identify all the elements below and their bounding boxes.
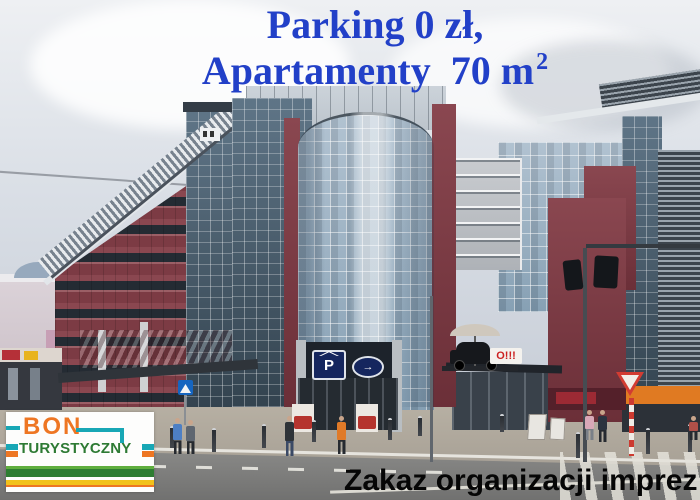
direction-sign: → [352, 356, 384, 378]
bollard [500, 414, 504, 432]
parking-sign-letter: P [324, 357, 334, 374]
logo-bracket-horizontal [76, 428, 124, 432]
shop-sign-yellow [24, 351, 38, 360]
pedestrian [688, 416, 699, 440]
poster-graphic [358, 416, 376, 429]
a-frame-sign [527, 414, 547, 440]
logo-subtitle: TURYSTYCZNY [19, 440, 131, 457]
bollard [646, 428, 650, 454]
logo-stripe-orange-left [6, 451, 18, 457]
tower-cap [183, 102, 237, 112]
bollard [388, 418, 392, 440]
bollard [212, 428, 216, 452]
bollard [312, 420, 316, 442]
storefront-sign: O!!! [490, 348, 522, 364]
logo-dash [6, 426, 20, 430]
shop-door [8, 368, 18, 400]
orange-storefront-band [626, 386, 700, 404]
striped-sign-post [629, 398, 634, 456]
traffic-light [593, 255, 619, 288]
traffic-light [562, 259, 583, 291]
pedestrian-crossing-sign [178, 380, 193, 395]
red-accent [556, 392, 596, 404]
headline-line2-text: Apartamenty 70 m [202, 48, 534, 93]
pedestrian [597, 410, 608, 442]
poster-graphic [294, 416, 312, 429]
pedestrian [185, 420, 196, 454]
street-pole [430, 296, 433, 462]
shop-door [30, 368, 40, 400]
parking-sign: P [312, 350, 346, 380]
bon-turystyczny-logo: BON TURYSTYCZNY [6, 412, 154, 492]
photo-scene: O!!! P → BON TURYSTYCZNY [0, 0, 700, 500]
headline-line1: Parking 0 zł, [140, 2, 610, 48]
pedestrian [336, 416, 347, 454]
facade-sign [200, 128, 220, 141]
headline-line2: Apartamenty 70 m2 [140, 48, 610, 100]
logo-stripe-orange-bottom [6, 485, 154, 487]
bollard [262, 424, 266, 448]
headline: Parking 0 zł, Apartamenty 70 m2 [140, 2, 610, 100]
pedestrian [584, 410, 595, 440]
bottom-notice: Zakaz organizacji imprez [344, 464, 697, 498]
storefront-sign-text: O!!! [496, 350, 516, 362]
car-wheel [454, 360, 465, 371]
a-frame-sign [549, 418, 565, 441]
logo-title: BON [23, 413, 82, 441]
poster [292, 404, 314, 432]
logo-stripe-teal-right [142, 444, 154, 450]
bollard [418, 416, 422, 436]
pedestrian [284, 416, 295, 456]
pedestrian [172, 418, 183, 454]
sign-glyphs [203, 131, 217, 137]
bollard [576, 432, 580, 458]
louver-screen [658, 150, 700, 410]
logo-stripe-orange-right [142, 451, 154, 457]
headline-superscript: 2 [536, 49, 548, 75]
arrow-icon: → [363, 361, 374, 373]
crossing-triangle-icon [180, 384, 191, 393]
logo-stripe-teal-left [6, 444, 18, 450]
balconies [448, 158, 522, 270]
logo-stripe-green-dark [6, 469, 154, 477]
poster [356, 404, 378, 432]
shop-sign-red [2, 350, 20, 360]
signal-mast-arm [586, 244, 700, 248]
